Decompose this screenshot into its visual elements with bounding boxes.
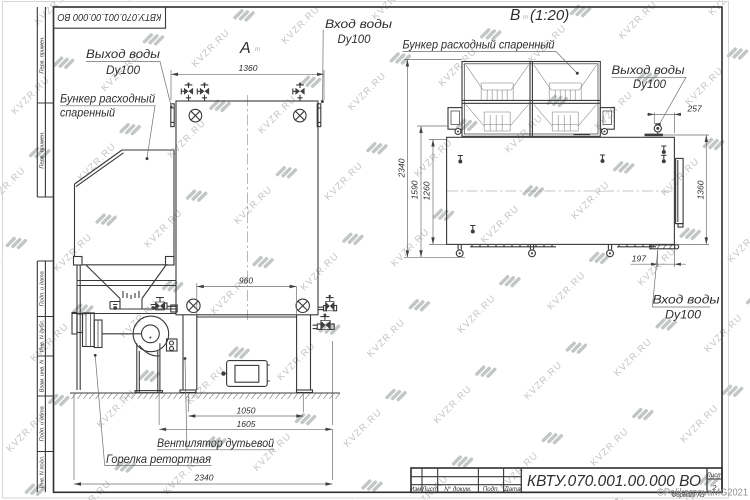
svg-text:257: 257 <box>687 104 702 114</box>
svg-text:m: m <box>255 47 260 53</box>
svg-text:Подп. и дата: Подп. и дата <box>40 406 46 441</box>
svg-text:В: В <box>510 7 520 24</box>
svg-text:Dy100: Dy100 <box>633 79 667 91</box>
svg-text:Dy100: Dy100 <box>665 310 702 322</box>
svg-text:1360: 1360 <box>239 63 258 73</box>
svg-text:Подп. и дата: Подп. и дата <box>40 271 46 306</box>
svg-text:Выход воды: Выход воды <box>86 49 161 61</box>
svg-text:1605: 1605 <box>237 419 256 429</box>
svg-text:197: 197 <box>632 254 646 264</box>
svg-text:Выход воды: Выход воды <box>612 65 686 77</box>
svg-text:Подп.: Подп. <box>483 486 499 493</box>
svg-text:m: m <box>523 15 528 21</box>
svg-text:1260: 1260 <box>422 181 432 200</box>
svg-text:А: А <box>239 40 251 57</box>
svg-text:Инв. N дубл.: Инв. N дубл. <box>40 320 46 352</box>
svg-text:Вход воды: Вход воды <box>325 19 393 31</box>
svg-text:спаренный: спаренный <box>60 108 116 120</box>
svg-text:Бункер расходный: Бункер расходный <box>60 94 156 106</box>
svg-text:Вход воды: Вход воды <box>653 295 721 307</box>
svg-text:Dy100: Dy100 <box>338 34 372 46</box>
svg-text:1050: 1050 <box>237 406 256 416</box>
svg-text:N° докум.: N° докум. <box>444 486 472 493</box>
svg-text:Дата: Дата <box>503 486 521 493</box>
svg-text:Перв. примен.: Перв. примен. <box>40 131 46 168</box>
svg-text:Инв. N подл.: Инв. N подл. <box>40 456 46 489</box>
svg-text:1590: 1590 <box>410 180 420 199</box>
svg-text:Бункер расходный спаренный: Бункер расходный спаренный <box>403 40 556 52</box>
svg-text:2340: 2340 <box>396 158 406 178</box>
svg-text:960: 960 <box>239 276 253 286</box>
svg-text:Лист: Лист <box>706 472 723 479</box>
svg-text:1360: 1360 <box>696 180 706 199</box>
svg-text:Взам. инв. N: Взам. инв. N <box>40 359 46 393</box>
svg-text:Вентилятор дутьевой: Вентилятор дутьевой <box>157 438 275 450</box>
svg-text:(1:20): (1:20) <box>530 7 569 24</box>
svg-text:Перв. примен.: Перв. примен. <box>40 36 46 73</box>
svg-text:КВТУ.070.001.00.000 ВО: КВТУ.070.001.00.000 ВО <box>57 11 161 22</box>
svg-text:2340: 2340 <box>194 473 214 483</box>
svg-text:Dy100: Dy100 <box>106 65 141 77</box>
svg-text:Горелка ретортная: Горелка ретортная <box>106 454 211 466</box>
svg-text:©PolikarpovaMG2021: ©PolikarpovaMG2021 <box>657 487 748 499</box>
svg-text:Лист: Лист <box>421 486 438 493</box>
